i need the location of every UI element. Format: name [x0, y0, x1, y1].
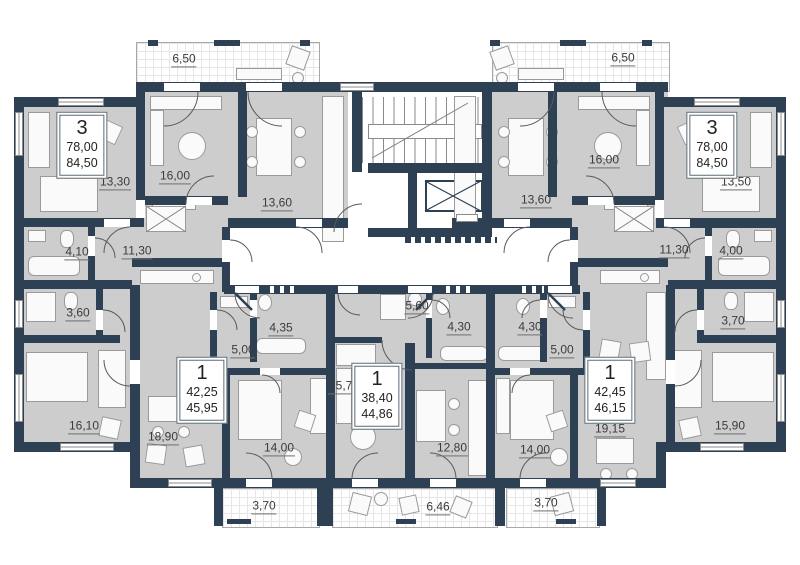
room-area-label: 3,70: [720, 314, 745, 329]
apartment-living-area: 42,25: [186, 384, 217, 400]
apartment-living-area: 38,40: [361, 390, 392, 406]
room-area-label: 3,60: [65, 306, 90, 321]
room-area-label: 19,15: [594, 422, 626, 437]
apartment-rooms-count: 3: [76, 118, 87, 139]
apartment-rooms-count: 1: [196, 363, 207, 384]
room-area-label: 4,00: [718, 244, 743, 259]
door-arc: [217, 310, 237, 330]
room-area-label: 4,10: [64, 245, 89, 260]
door-arc: [520, 92, 554, 126]
room-area-label: 4,30: [446, 320, 471, 335]
apartment-info-box: 3 78,00 84,50: [686, 112, 737, 179]
door-leaf: [235, 293, 252, 310]
door-arc: [675, 360, 701, 386]
room-area-label: 14,00: [519, 443, 551, 458]
room-area-label: 14,00: [263, 441, 295, 456]
apartment-living-area: 78,00: [66, 139, 97, 155]
floor-plan-canvas: 6,5013,3016,0013,604,1011,303,6016,1018,…: [0, 0, 800, 565]
room-area-label: 16,00: [588, 153, 620, 168]
room-area-label: 15,90: [714, 419, 746, 434]
door-arc: [230, 240, 252, 262]
door-arc: [248, 92, 282, 126]
room-area-label: 13,60: [261, 196, 293, 211]
door-arc: [675, 310, 697, 332]
door-arc: [548, 240, 570, 262]
door-arc: [586, 176, 614, 204]
apartment-info-inner: 3 78,00 84,50: [689, 115, 734, 176]
door-arc: [352, 453, 378, 479]
apartment-info-box: 1 38,40 44,86: [351, 363, 402, 430]
door-arc: [164, 92, 198, 126]
door-arc: [103, 310, 125, 332]
door-arc: [95, 238, 115, 258]
room-area-label: 18,90: [147, 430, 179, 445]
apartment-info-inner: 1 42,25 45,95: [179, 360, 224, 421]
apartment-rooms-count: 3: [706, 118, 717, 139]
apartment-total-area: 44,86: [361, 406, 392, 422]
door-arc: [504, 227, 530, 253]
apartment-info-box: 1 42,25 45,95: [176, 357, 227, 424]
room-area-label: 3,70: [533, 496, 558, 511]
room-area-label: 13,60: [520, 193, 552, 208]
door-leaf: [548, 293, 565, 310]
apartment-total-area: 84,50: [696, 155, 727, 171]
door-arc: [334, 204, 362, 232]
room-area-label: 12,80: [436, 441, 468, 456]
apartment-rooms-count: 1: [371, 369, 382, 390]
room-area-label: 5,00: [230, 343, 255, 358]
door-arc: [430, 453, 456, 479]
door-arc: [522, 300, 540, 318]
room-area-label: 3,70: [251, 499, 276, 514]
apartment-total-area: 46,15: [594, 400, 625, 416]
apartment-info-inner: 1 42,45 46,15: [587, 360, 632, 421]
closet-x: [146, 206, 186, 232]
room-area-label: 16,00: [159, 169, 191, 184]
room-area-label: 6,46: [425, 500, 450, 515]
room-area-label: 6,50: [171, 52, 196, 67]
door-arc: [563, 310, 583, 330]
apartment-info-inner: 1 38,40 44,86: [354, 366, 399, 427]
room-area-label: 11,30: [121, 244, 152, 259]
door-arc: [338, 293, 360, 315]
door-arc: [104, 360, 130, 386]
room-area-label: 4,35: [268, 321, 293, 336]
apartment-living-area: 78,00: [696, 139, 727, 155]
room-area-label: 11,30: [658, 243, 689, 258]
apartment-info-inner: 3 78,00 84,50: [59, 115, 104, 176]
apartment-rooms-count: 1: [604, 363, 615, 384]
doors-and-symbols-overlay: [0, 0, 800, 565]
apartment-total-area: 45,95: [186, 400, 217, 416]
room-area-label: 5,00: [549, 343, 574, 358]
door-arc: [246, 453, 272, 479]
door-arc: [432, 300, 450, 318]
door-arc: [512, 375, 530, 393]
door-arc: [262, 375, 280, 393]
door-arc: [296, 227, 322, 253]
room-area-label: 6,50: [610, 51, 635, 66]
apartment-living-area: 42,45: [594, 384, 625, 400]
stair-direction-line: [372, 103, 468, 158]
room-area-label: 4,30: [517, 320, 542, 335]
room-area-label: 16,10: [68, 419, 100, 434]
closet-x: [614, 206, 654, 232]
apartment-info-box: 1 42,45 46,15: [584, 357, 635, 424]
elevator-x: [425, 181, 481, 211]
door-arc: [602, 92, 636, 126]
room-area-label: 5,60: [404, 299, 429, 314]
apartment-info-box: 3 78,00 84,50: [56, 112, 107, 179]
apartment-total-area: 84,50: [66, 155, 97, 171]
